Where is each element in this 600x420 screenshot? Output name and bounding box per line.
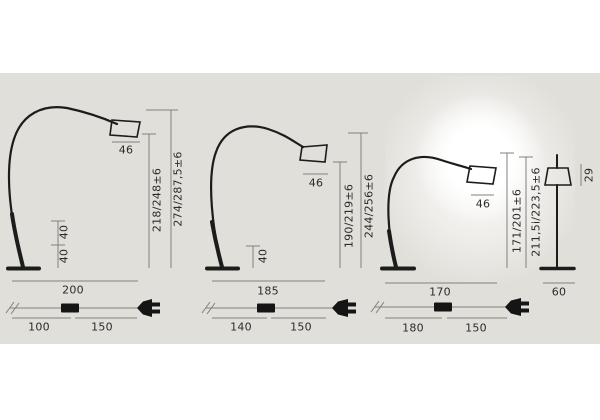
cable-segment-label: 180 [402,322,424,335]
cable-segment-label: 100 [28,321,50,334]
shade-diameter-label: 46 [309,177,324,190]
cable-switch-icon [61,304,79,313]
cable-segment-label: 150 [290,321,312,334]
base-depth-label: 200 [62,284,84,297]
height-overall-label: 211,5i/223,5±6 [530,167,543,256]
stem-dim-label: 40 [257,249,270,264]
height-inner-label: 218/248±6 [151,168,164,232]
cable-switch-icon [434,303,452,312]
cable-segment-label: 150 [91,321,113,334]
shade-diameter-label: 46 [476,198,491,211]
lamp-straight-drawing [541,155,581,283]
lamp-shade [300,145,327,162]
base-depth-label: 185 [257,285,279,298]
height-overall-label: 274/287,5±6 [172,151,185,226]
cable-switch-icon [257,304,275,313]
stem-dim-label: 40 [58,225,71,240]
power-cable [202,299,356,318]
power-cable [6,299,160,318]
power-cable [371,298,529,318]
lamp-shade [545,168,571,185]
base-width-label: 60 [552,286,567,299]
cable-segment-label: 140 [230,321,252,334]
base-depth-label: 170 [429,286,451,299]
lamp-small-arc-drawing [371,153,533,318]
dimension-diagram: 46 218/248±6 274/287,5±6 40 40 200 100 1… [0,0,600,420]
cable-segment-label: 150 [465,322,487,335]
shade-height-label: 29 [583,168,596,183]
power-plug-icon [332,299,356,317]
power-plug-icon [505,298,529,316]
height-inner-label: 190/219±6 [343,184,356,248]
stem-dim-label: 40 [58,249,71,264]
height-overall-label: 244/256±6 [363,174,376,238]
power-plug-icon [137,299,160,317]
shade-diameter-label: 46 [119,144,134,157]
height-inner-label: 171/201±6 [511,189,524,253]
